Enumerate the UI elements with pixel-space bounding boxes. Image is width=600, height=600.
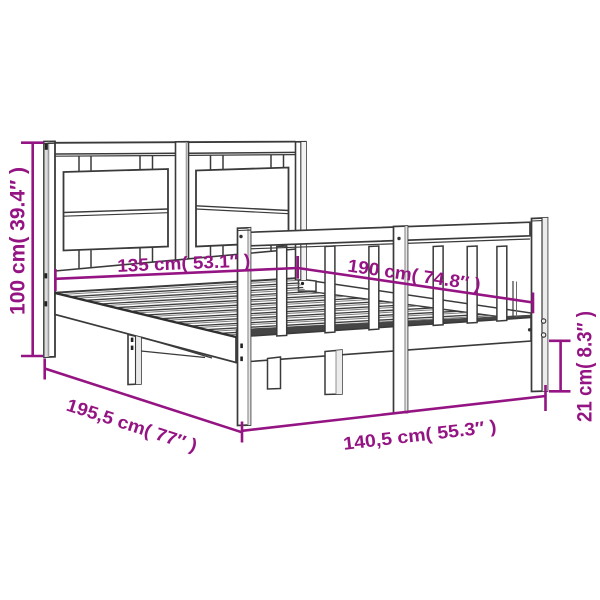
svg-text:100 cm( 39.4″ ): 100 cm( 39.4″ ) xyxy=(6,167,29,315)
svg-text:21 cm( 8.3″ ): 21 cm( 8.3″ ) xyxy=(574,311,597,422)
